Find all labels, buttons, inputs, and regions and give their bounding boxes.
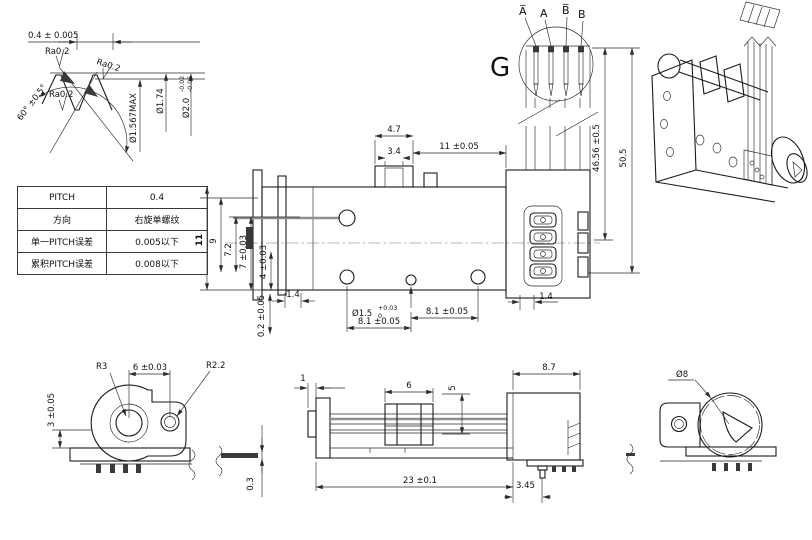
- table-row: PITCH 0.4: [18, 187, 208, 209]
- table-row: 累积PITCH误差 0.008以下: [18, 253, 208, 275]
- terminal-b-bar-label: B̅: [562, 4, 570, 17]
- major-diameter: Ø2.0: [181, 98, 192, 118]
- height-9-dim: 9: [209, 238, 219, 243]
- tip-width-dim: 1: [300, 374, 305, 384]
- roughness-mid: Ra0.2: [95, 57, 121, 74]
- fpc-terminals: [533, 46, 584, 96]
- thread-detail-view: 0.4 ± 0.005 60° ±0.5° Ra0.2 Ra0.2 Ra0.2 …: [16, 31, 205, 161]
- spec-label: 单一PITCH误差: [18, 231, 107, 253]
- spec-label: 方向: [18, 209, 107, 231]
- table-row: 方向 右旋单螺纹: [18, 209, 208, 231]
- radius-small-dim: R2.2: [206, 361, 225, 371]
- leader-arrow: [84, 84, 98, 97]
- spec-label: 累积PITCH误差: [18, 253, 107, 275]
- terminal-a-bar-label: A̅: [519, 5, 527, 18]
- roughness-bottom: Ra0.2: [49, 90, 73, 100]
- side-view: 1 6 5 8.7 23 ±0.1 3.45: [294, 363, 583, 503]
- slot-width-dim: 3.4: [387, 147, 401, 157]
- isometric-view: [652, 2, 811, 202]
- top-view: G A̅ A B̅ B 4.7 3.4 11 ±0.05 11 9: [195, 4, 600, 337]
- detail-g: G A̅ A B̅ B: [490, 4, 593, 101]
- root-diameter: Ø1.567MAX: [128, 93, 139, 143]
- major-diameter-tol-lo: -0.06: [187, 76, 194, 92]
- fpc-dimensions: 46.56 ±0.5 50.5: [588, 48, 640, 273]
- table-row: 单一PITCH误差 0.005以下: [18, 231, 208, 253]
- height-7-2-dim: 7.2: [224, 243, 234, 257]
- break-line: [518, 100, 560, 124]
- terminal-a-label: A: [540, 7, 548, 20]
- carriage-width-dim: 4.7: [387, 125, 401, 135]
- pitch-diameter: Ø1.74: [155, 88, 166, 114]
- motor-diameter-dim: Ø8: [676, 369, 688, 380]
- overall-length-dim: 23 ±0.1: [403, 476, 437, 486]
- pitch-81-left-dim: 8.1 ±0.05: [358, 317, 400, 327]
- pin-thickness-dim: 0.3: [246, 477, 256, 491]
- rear-view: Ø8: [626, 369, 776, 474]
- hole-tol-hi: +0.03: [378, 305, 397, 312]
- radius-big-dim: R3: [96, 362, 107, 372]
- carriage-length-dim: 6: [406, 381, 411, 391]
- terminal-b-label: B: [578, 8, 586, 21]
- pitch-81-right-dim: 8.1 ±0.05: [426, 307, 468, 317]
- height-4-dim: 4 ±0.03: [259, 245, 269, 279]
- spec-table: PITCH 0.4 方向 右旋单螺纹 单一PITCH误差 0.005以下 累积P…: [17, 186, 208, 275]
- motor-14-dim: 1.4: [539, 292, 553, 302]
- fpc-ribbon: [518, 46, 598, 170]
- travel-dim: 11 ±0.05: [439, 142, 479, 152]
- spec-value: 0.005以下: [107, 231, 208, 253]
- front-view: R3 6 ±0.03 R2.2 3 ±0.05: [47, 361, 225, 480]
- hole-centers-dim: 6 ±0.03: [133, 363, 167, 373]
- pitch-dimension: 0.4 ± 0.005: [28, 31, 78, 41]
- step-dim: 0.2 ±0.05: [257, 295, 267, 337]
- plate-height-dim: 3 ±0.05: [47, 393, 57, 427]
- motor-width-dim: 8.7: [542, 363, 556, 373]
- major-diameter-tol-hi: -0.02: [179, 76, 186, 92]
- spec-value: 0.008以下: [107, 253, 208, 275]
- spec-value: 0.4: [107, 187, 208, 209]
- roughness-top: Ra0.2: [45, 47, 69, 57]
- detail-g-label: G: [490, 53, 510, 83]
- fpc-length-dim: 46.56 ±0.5: [592, 124, 602, 172]
- carriage-height-dim: 5: [448, 385, 458, 390]
- pin-thickness-detail: 0.3: [216, 425, 262, 497]
- engineering-drawing: 0.4 ± 0.005 60° ±0.5° Ra0.2 Ra0.2 Ra0.2 …: [0, 0, 812, 540]
- break-line: [216, 446, 222, 476]
- fpc-pads: [530, 213, 556, 278]
- fpc-total-dim: 50.5: [619, 149, 629, 168]
- bracket-14-dim: 1.4: [286, 290, 300, 300]
- bracket-offset-dim: 3.45: [516, 481, 535, 491]
- flank-angle-dimension: 60° ±0.5°: [16, 83, 50, 123]
- spec-label: PITCH: [18, 187, 107, 209]
- break-line: [627, 444, 633, 474]
- height-7-dim: 7 ±0.03: [239, 235, 249, 269]
- spec-value: 右旋单螺纹: [107, 209, 208, 231]
